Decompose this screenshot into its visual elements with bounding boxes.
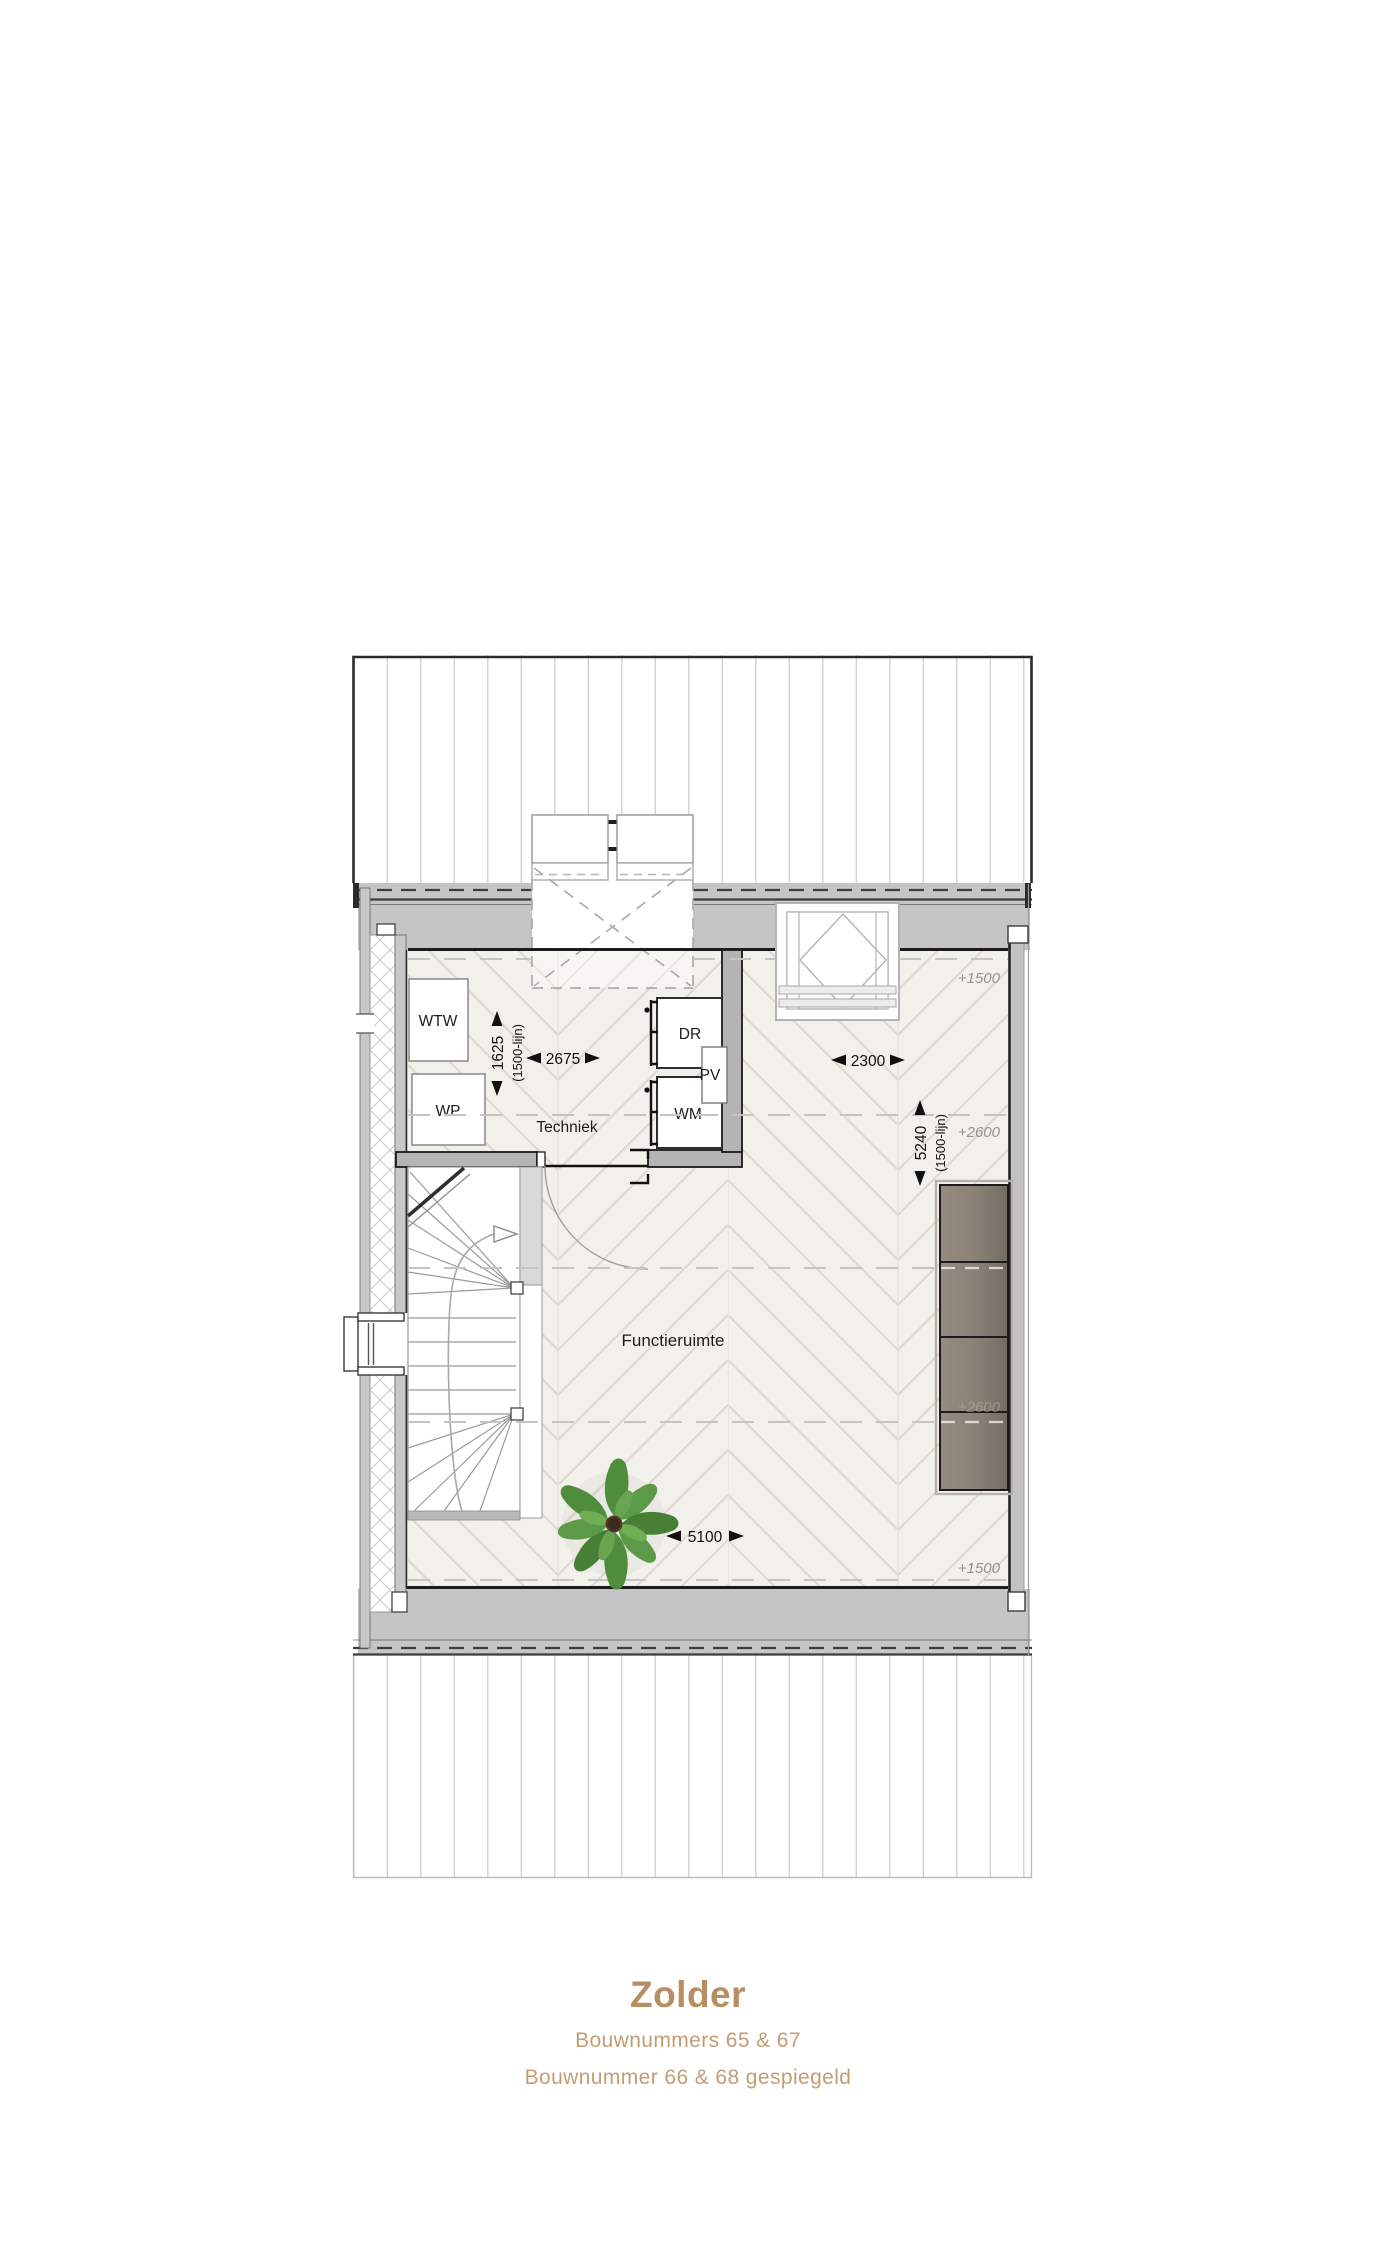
dimension-5100-value: 5100 xyxy=(688,1529,723,1546)
page-title: Zolder xyxy=(0,1974,1376,2016)
staircase xyxy=(408,1167,542,1520)
door-jamb xyxy=(537,1152,545,1167)
wp-label: WP xyxy=(436,1103,461,1120)
wardrobe-cabinet xyxy=(936,1181,1012,1494)
newel-post-bottom xyxy=(511,1408,523,1420)
dimension-2675-value: 2675 xyxy=(546,1051,580,1068)
dr-label: DR xyxy=(679,1026,701,1043)
dimension-1625-note: (1500-lijn) xyxy=(510,1024,525,1082)
dimension-5240-value: 5240 xyxy=(913,1125,930,1160)
level-marker-1500-top: +1500 xyxy=(958,970,1001,987)
floorplan-drawing: WTW WP DR PV WM xyxy=(0,0,1376,2244)
eave-band-bottom xyxy=(353,1589,1032,1655)
room-label-functieruimte: Functieruimte xyxy=(622,1331,725,1350)
room-label-techniek: Techniek xyxy=(536,1119,597,1136)
page-subtitle-gespiegeld: Bouwnummer 66 & 68 gespiegeld xyxy=(0,2066,1376,2090)
left-wall xyxy=(344,888,407,1648)
left-wall-joint xyxy=(356,1014,374,1033)
page-subtitle-bouwnummers: Bouwnummers 65 & 67 xyxy=(0,2029,1376,2053)
dimension-1625-value: 1625 xyxy=(490,1036,507,1070)
roof-panel-left xyxy=(532,815,608,880)
dimension-2300-value: 2300 xyxy=(851,1053,886,1070)
newel-post-top xyxy=(511,1282,523,1294)
roof-panel-right xyxy=(617,815,693,880)
level-marker-1500-bottom: +1500 xyxy=(958,1560,1001,1577)
pv-label: PV xyxy=(700,1067,721,1084)
left-wall-window xyxy=(344,1313,407,1375)
roof-window xyxy=(776,903,899,1020)
level-marker-2600-bottom: +2600 xyxy=(958,1399,1001,1416)
floorplan-page: WTW WP DR PV WM xyxy=(0,0,1376,2244)
roof-surface-bottom xyxy=(353,1655,1032,1878)
dimension-5240-note: (1500-lijn) xyxy=(933,1114,948,1172)
wtw-label: WTW xyxy=(419,1013,458,1030)
level-marker-2600-top: +2600 xyxy=(958,1124,1001,1141)
